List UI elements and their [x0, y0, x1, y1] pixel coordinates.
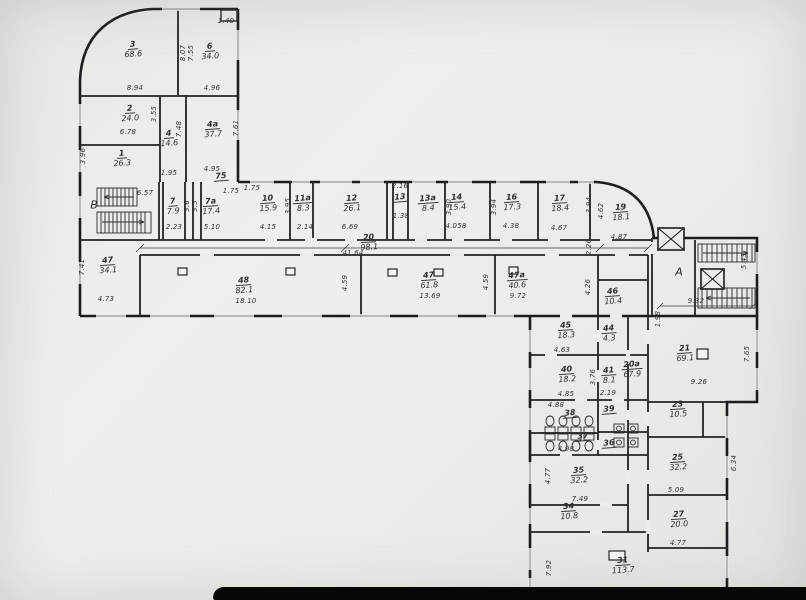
- photo-black-edge: [213, 587, 806, 600]
- sink-icons: [614, 424, 638, 447]
- shaft-box: [221, 10, 237, 21]
- elevator-icon: [701, 269, 724, 289]
- corridor-dimension-line: [136, 244, 652, 252]
- door-openings: [200, 240, 652, 534]
- stairs-b: [97, 188, 151, 233]
- floor-plan-drawing: [0, 0, 806, 600]
- outer-walls: [80, 9, 757, 600]
- window-marks: [80, 9, 757, 596]
- floor-plan-canvas: 368.6634.0224.0414.64а37.7126.37577.97а1…: [0, 0, 806, 600]
- elevator-icon: [658, 228, 684, 250]
- toilet-icons: [540, 416, 598, 451]
